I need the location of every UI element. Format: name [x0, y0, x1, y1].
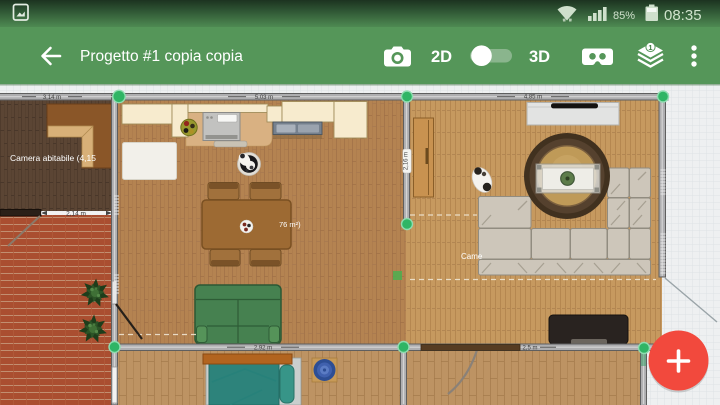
- svg-text:Camera abitabile (4,15: Camera abitabile (4,15: [10, 153, 96, 163]
- svg-text:2,5 m: 2,5 m: [522, 345, 537, 351]
- svg-text:5,03 m: 5,03 m: [255, 95, 273, 101]
- svg-text:Progetto #1 copia copia: Progetto #1 copia copia: [80, 48, 243, 65]
- svg-text:4,85 m: 4,85 m: [524, 95, 542, 101]
- svg-text:3,14 m: 3,14 m: [43, 95, 61, 101]
- svg-text:3D: 3D: [529, 48, 550, 66]
- svg-text:85%: 85%: [613, 10, 635, 22]
- svg-text:2,16 m: 2,16 m: [403, 152, 409, 170]
- svg-text:2D: 2D: [431, 48, 452, 66]
- svg-text:2,92 m: 2,92 m: [254, 346, 272, 352]
- svg-text:Came: Came: [461, 252, 483, 261]
- svg-text:2,14 m: 2,14 m: [66, 211, 86, 218]
- svg-text:76 m²): 76 m²): [279, 220, 301, 229]
- svg-text:1: 1: [648, 43, 652, 52]
- svg-text:08:35: 08:35: [664, 7, 702, 24]
